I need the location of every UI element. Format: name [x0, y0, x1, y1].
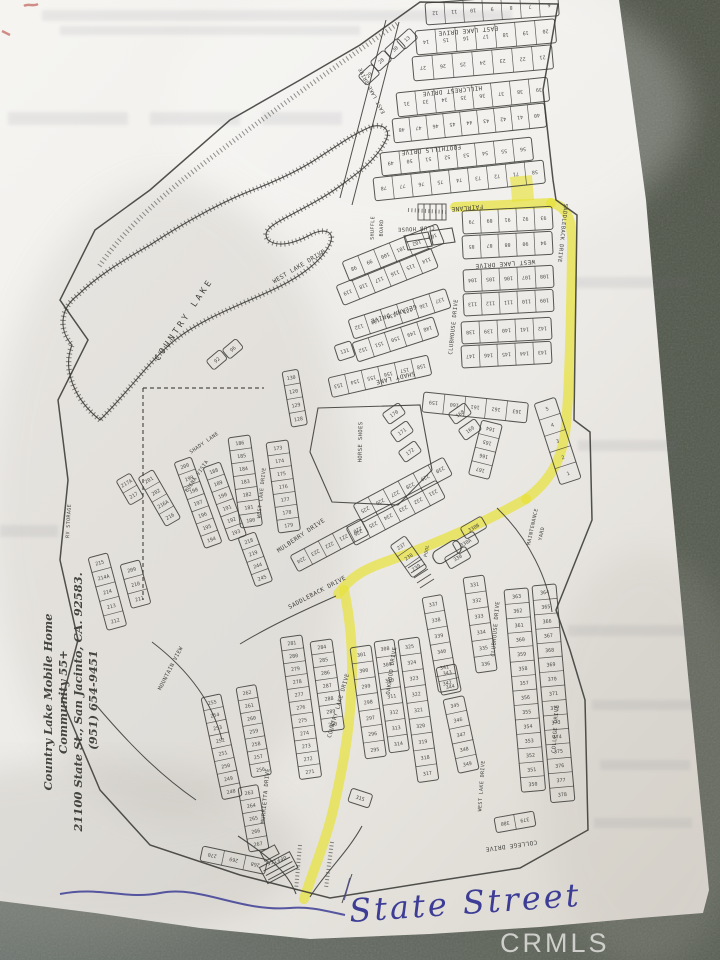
- lot-number: 276: [296, 705, 306, 712]
- lot-number: 79: [468, 218, 474, 224]
- lot-number: 371: [549, 691, 559, 698]
- lot-number: 58: [531, 168, 538, 175]
- lot-number: 335: [479, 645, 489, 652]
- lot-number: 324: [407, 660, 417, 667]
- lot-number: 365: [541, 604, 551, 611]
- lot-number: 277: [294, 692, 304, 699]
- lot-number: 11: [451, 8, 457, 14]
- lot-number: 85: [468, 243, 474, 249]
- facility-label: SHUFFLE: [370, 216, 377, 240]
- lot-number: 53: [463, 151, 470, 158]
- lot-number: 146: [484, 351, 493, 357]
- lot-number: 333: [474, 613, 484, 620]
- lot-number: 33: [422, 98, 429, 105]
- lot-number: 159: [429, 399, 439, 406]
- lot-number: 357: [519, 680, 529, 687]
- lot-number: 25: [460, 60, 467, 67]
- lot-number: 308: [380, 646, 390, 653]
- lot-number: 78: [380, 184, 387, 191]
- plat-map-photo: 1211109876141516171819202726252423222131…: [0, 0, 720, 960]
- lot-number: 369: [546, 662, 556, 669]
- lot-number: 46: [432, 122, 439, 129]
- lot-number: 178: [282, 510, 292, 517]
- lot-number: 72: [494, 172, 501, 179]
- lot-number: 42: [500, 115, 507, 122]
- lot-number: 363: [512, 594, 522, 601]
- lot-number: 147: [466, 352, 475, 358]
- lot-number: 73: [475, 174, 482, 181]
- lot-number: 47: [415, 124, 422, 131]
- lot-number: 317: [423, 771, 433, 778]
- lot-number: 141: [520, 326, 529, 332]
- lot-number: 22: [519, 55, 526, 62]
- lot-number: 353: [525, 738, 535, 745]
- lot-number: 298: [363, 699, 373, 706]
- lot-number: 175: [277, 471, 287, 478]
- lot-number: 364: [540, 590, 550, 597]
- lot-number: 52: [444, 153, 451, 160]
- lot-number: 7: [528, 3, 531, 9]
- facility-label: BOARD: [379, 219, 386, 236]
- lot-number: 321: [414, 707, 424, 714]
- lot-number: 332: [472, 598, 482, 605]
- lot-number: 87: [486, 242, 492, 248]
- lot-number: 297: [366, 715, 376, 722]
- lot-number: 140: [502, 326, 511, 332]
- lot-number: 313: [391, 725, 401, 732]
- lot-number: 161: [470, 403, 480, 410]
- lot-number: 285: [319, 657, 329, 664]
- lot-number: 104: [468, 276, 477, 282]
- lot-number: 51: [425, 155, 432, 162]
- lot-number: 360: [516, 637, 526, 644]
- lot-number: 186: [235, 440, 245, 447]
- lot-number: 286: [321, 670, 331, 677]
- lot-number: 16: [463, 34, 470, 41]
- lot-number: 312: [389, 709, 399, 716]
- lot-number: 359: [517, 651, 527, 658]
- lot-number: 37: [498, 90, 505, 97]
- lot-number: 9: [490, 5, 493, 11]
- lot-number: 39: [536, 86, 543, 93]
- lot-number: 301: [357, 652, 367, 659]
- lot-number: 38: [517, 88, 524, 95]
- lot-number: 142: [538, 325, 547, 331]
- lot-number: 295: [370, 747, 380, 754]
- lot-number: 370: [547, 676, 557, 683]
- lot-number: 378: [558, 792, 568, 799]
- lot-number: 41: [517, 113, 524, 120]
- lot-number: 314: [394, 741, 404, 748]
- lot-number: 138: [466, 328, 475, 334]
- lot-number: 31: [403, 100, 410, 107]
- lot-number: 318: [420, 755, 430, 762]
- lot-number: 322: [411, 691, 421, 698]
- lot-number: 93: [540, 214, 546, 220]
- lot-number: 358: [518, 666, 528, 673]
- lot-number: 75: [437, 178, 444, 185]
- lot-number: 49: [387, 159, 394, 166]
- lot-number: 336: [481, 661, 491, 668]
- lot-number: 15: [443, 36, 450, 43]
- lot-number: 176: [278, 484, 288, 491]
- lot-number: 180: [246, 517, 256, 524]
- lot-number: 331: [470, 582, 480, 589]
- address-line: Community 55+: [56, 650, 70, 754]
- lot-number: 106: [504, 274, 513, 280]
- highlighted-lot: [510, 175, 534, 202]
- lot-number: 334: [476, 629, 486, 636]
- lot-number: 183: [240, 479, 250, 486]
- lot-number: 273: [302, 743, 312, 750]
- lot-number: 319: [418, 739, 428, 746]
- lot-number: 274: [300, 730, 310, 737]
- lot-number: 174: [275, 458, 285, 465]
- lot-number: 48: [398, 126, 405, 133]
- lot-number: 173: [273, 445, 283, 452]
- lot-number: 14: [423, 38, 430, 45]
- lot-number: 377: [556, 777, 566, 784]
- lot-number: 10: [470, 7, 476, 13]
- lot-number: 355: [522, 709, 532, 716]
- lot-number: 43: [483, 117, 490, 124]
- lot-number: 145: [502, 350, 511, 356]
- lot-number: 351: [527, 767, 537, 774]
- lot-number: 368: [545, 647, 555, 654]
- lot-number: 36: [479, 92, 486, 99]
- lot-number: 323: [409, 675, 419, 682]
- lot-number: 40: [534, 112, 541, 119]
- lot-number: 275: [298, 717, 308, 724]
- lot-number: 110: [522, 298, 531, 304]
- lot-number: 77: [399, 182, 406, 189]
- lot-number: 35: [460, 94, 467, 101]
- lot-number: 19: [522, 29, 529, 36]
- lot-number: 89: [486, 217, 492, 223]
- lot-number: 352: [526, 753, 536, 760]
- lot-number: 6: [547, 1, 550, 7]
- lot-number: 17: [482, 33, 489, 40]
- lot-number: 23: [499, 57, 506, 64]
- lot-number: 179: [284, 522, 294, 529]
- lot-number: 356: [521, 695, 531, 702]
- lot-number: 376: [555, 763, 565, 770]
- lot-number: 299: [361, 683, 371, 690]
- lot-number: 182: [242, 492, 252, 499]
- address-line: 21100 State St., San Jacinto, CA. 92583.: [71, 572, 85, 832]
- facility-label: HORSE SHOES: [358, 422, 365, 463]
- lot-number: 88: [504, 241, 510, 247]
- lot-number: 320: [416, 723, 426, 730]
- lot-number: 113: [468, 300, 477, 306]
- lot-number: 111: [504, 298, 513, 304]
- crmls-watermark: CRMLS: [500, 928, 610, 958]
- lot-number: 185: [237, 453, 247, 460]
- lot-number: 271: [305, 769, 315, 776]
- lot-number: 184: [239, 466, 249, 473]
- lot-number: 18: [502, 31, 509, 38]
- lot-number: 55: [501, 147, 508, 154]
- lot-number: 71: [513, 170, 520, 177]
- lot-number: 287: [322, 683, 332, 690]
- lot-number: 112: [486, 299, 495, 305]
- lot-number: 108: [540, 273, 549, 279]
- lot-number: 144: [520, 350, 529, 356]
- lot-number: 181: [244, 505, 254, 512]
- lot-number: 300: [359, 668, 369, 675]
- lot-number: 34: [441, 96, 448, 103]
- lot-number: 26: [440, 62, 447, 69]
- lot-number: 362: [513, 608, 523, 615]
- lot-number: 90: [522, 240, 528, 246]
- lot-number: 163: [512, 407, 522, 414]
- lot-number: 296: [368, 731, 378, 738]
- lot-number: 21: [539, 53, 546, 60]
- lot-number: 361: [514, 623, 524, 630]
- lot-number: 45: [449, 121, 456, 128]
- lot-number: 279: [291, 666, 301, 673]
- lot-number: 350: [528, 781, 538, 788]
- lot-number: 107: [522, 274, 531, 280]
- lot-number: 20: [542, 27, 549, 34]
- lot-number: 366: [542, 619, 552, 626]
- lot-number: 284: [317, 644, 327, 651]
- lot-number: 278: [292, 679, 302, 686]
- lot-number: 24: [479, 59, 486, 66]
- lot-number: 76: [418, 180, 425, 187]
- lot-number: 12: [432, 9, 438, 15]
- lot-number: 280: [289, 653, 299, 660]
- lot-number: 288: [324, 696, 334, 703]
- lot-number: 94: [540, 239, 546, 245]
- address-line: Country Lake Mobile Home: [41, 614, 55, 791]
- lot-number: 272: [303, 756, 313, 763]
- lot-number: 44: [466, 119, 473, 126]
- lot-number: 281: [287, 640, 297, 647]
- lot-number: 325: [405, 644, 415, 651]
- lot-number: 92: [522, 215, 528, 221]
- lot-number: 177: [280, 497, 290, 504]
- lot-number: 8: [509, 4, 512, 10]
- lot-number: 91: [504, 216, 510, 222]
- lot-number: 74: [456, 176, 463, 183]
- lot-number: 367: [544, 633, 554, 640]
- lot-number: 109: [540, 297, 549, 303]
- lot-number: 162: [491, 405, 501, 412]
- lot-number: 105: [486, 275, 495, 281]
- lot-number: 50: [406, 157, 413, 164]
- lot-number: 354: [523, 724, 533, 731]
- lot-number: 56: [520, 145, 527, 152]
- lot-number: 54: [482, 149, 489, 156]
- lot-number: 27: [420, 64, 427, 71]
- lot-number: 143: [538, 349, 547, 355]
- address-line: (951) 654-9451: [86, 650, 100, 750]
- lot-number: 139: [484, 327, 493, 333]
